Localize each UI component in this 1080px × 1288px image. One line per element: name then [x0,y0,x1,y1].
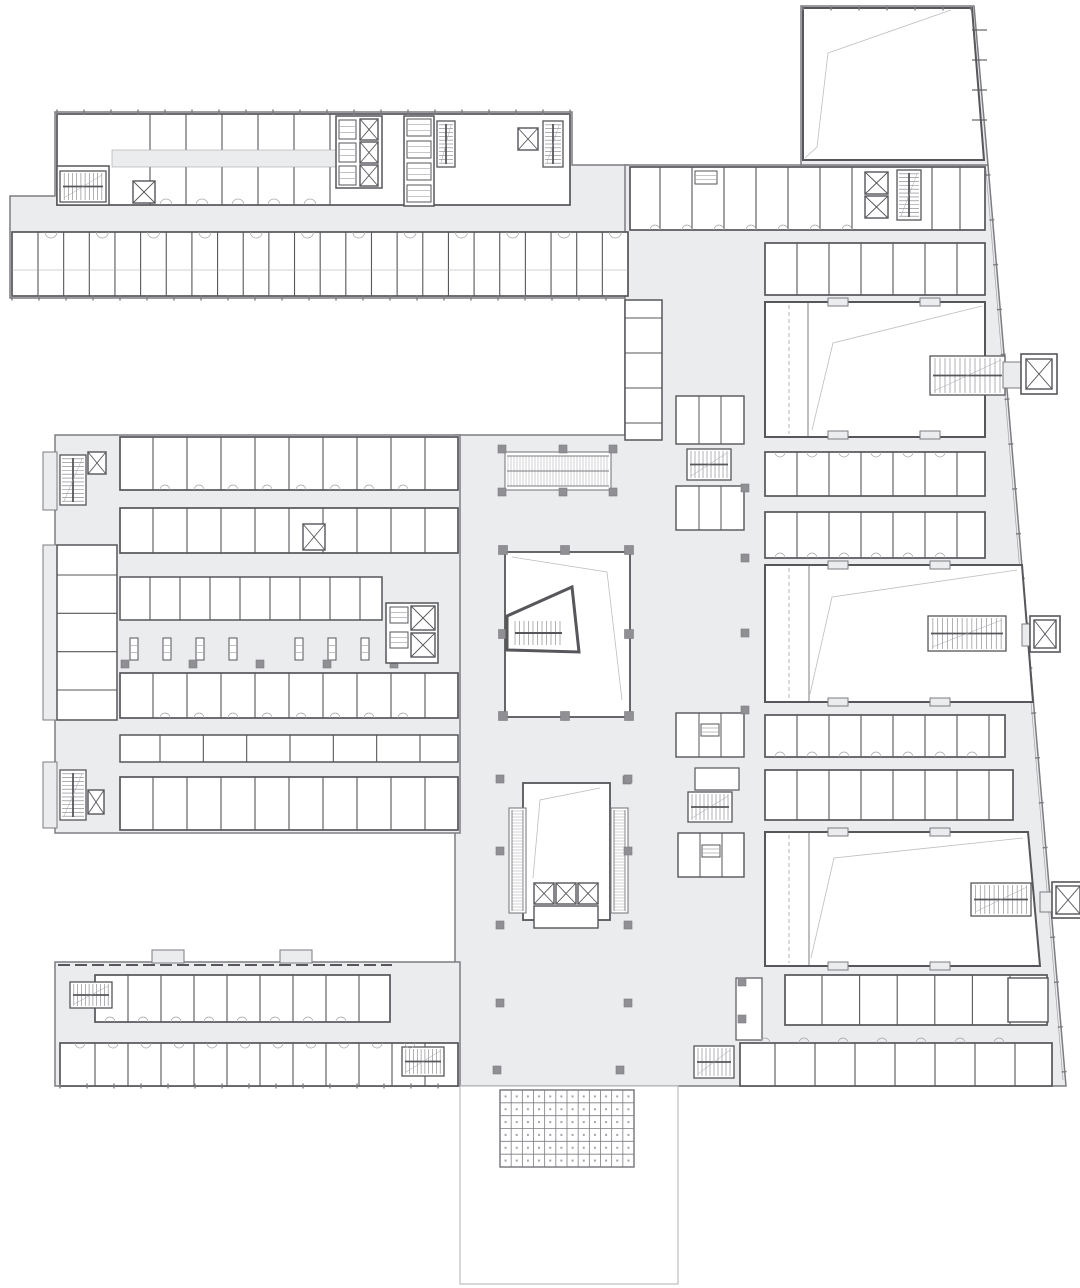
rbt-elev-2 [865,196,888,218]
nw-bed-lift-6 [407,163,431,180]
hall1-notch-4 [920,431,940,439]
hall3-notch-1 [828,828,848,836]
hall3-notch-2 [930,828,950,836]
bandA-west-rooms [676,396,744,444]
ww-rooms-r3 [120,577,382,620]
nw-bed-lift-2 [339,143,356,162]
bandC-pod [1008,978,1048,1022]
atrium2-escalator-right [611,808,628,913]
rbt-elev-1 [865,172,888,194]
hall1-notch-3 [828,431,848,439]
nw-bed-lift-4 [407,119,431,136]
floor-plan-canvas [0,0,1080,1288]
ww-core-elev-2 [411,633,435,657]
bandA-pod [676,486,744,530]
ww-stair-sw [60,770,86,820]
ww-bed-1 [130,638,138,660]
bandA-rooms-2 [765,512,985,558]
ww-bed-7 [361,638,369,660]
atrium2-lobby [534,906,598,928]
nw-stair-west [60,171,106,202]
junction-rooms [736,978,762,1040]
link-rooms [625,300,662,440]
nw-stair-east [543,121,563,167]
nw-bed-lift-1 [339,120,356,139]
sw-stair-e [402,1047,444,1076]
nw-elev-3 [360,165,378,186]
bandA-stair [687,449,731,480]
nw-bed-lift-7 [407,185,431,202]
ww-elev-nw [88,452,106,474]
mid-rooms [695,768,739,790]
bandB-rooms-2 [765,770,1013,820]
ww-elev-mid [303,524,325,550]
ww-bed-2 [163,638,171,660]
nw-elev-1 [360,119,378,140]
rb2-rooms [765,243,985,295]
nw-bed-lift-3 [339,166,356,185]
atrium2-elev-1 [534,883,554,904]
pod2-elev [1034,620,1056,648]
plate-west-stub-b [43,545,57,720]
plate-west-stub-a [43,452,57,510]
atrium2-escalator-left [509,808,526,913]
nw-stair-mid [437,121,455,167]
plate-south-bump-a [152,950,184,963]
sw-stair-w [70,982,112,1008]
atrium2-elev-2 [556,883,576,904]
ww-rooms-r5 [120,735,458,762]
hall1-stair [930,356,1005,395]
mid-stair [688,792,732,822]
hall1-notch-1 [828,298,848,306]
spine-escalators-top [505,452,611,490]
sw-rooms-r2 [60,1043,458,1086]
ww-elev-sw [88,790,104,814]
bandB-rooms-1 [765,715,1005,757]
pod3-elev [1056,886,1080,914]
hall2-notch-1 [828,561,848,569]
ww-core-bed-1 [390,607,408,623]
ww-bed-6 [328,638,336,660]
plate-west-stub-c [43,762,57,828]
hall3-stair [971,883,1031,916]
hall2-notch-2 [930,561,950,569]
nw-elev-2 [360,142,378,163]
hall2-stair [928,616,1006,651]
ww-bed-3 [196,638,204,660]
ww-bed-5 [295,638,303,660]
mid-pod-1-fixture [701,724,719,736]
hall3-notch-4 [930,962,950,970]
ww-west-rooms [57,545,117,720]
nw-elev-b [518,128,538,150]
hall3-notch-3 [828,962,848,970]
nw-elev-a [133,181,155,203]
nw-bed-lift-5 [407,141,431,158]
pod1-bridge [1003,362,1023,388]
hall2-notch-3 [828,698,848,706]
hall2-notch-4 [930,698,950,706]
ww-stair-nw [60,455,86,505]
ww-core-elev-1 [411,606,435,630]
nw-upper-corridor [112,150,337,167]
ww-core-bed-2 [390,632,408,648]
canopy-grid [500,1090,634,1167]
mid-pod-2-fixture [702,845,720,857]
atrium2-elev-3 [578,883,598,904]
hall1-notch-2 [920,298,940,306]
rbt-stair [897,170,921,220]
pod1-elev [1026,359,1052,389]
ww-bed-4 [229,638,237,660]
floor-plan-drawing [0,0,1080,1288]
rbt-duct [695,171,717,184]
junction-stair [694,1046,734,1078]
bandA-rooms-1 [765,452,985,496]
plate-south-bump-b [280,950,312,963]
sw-rooms-r1 [95,975,390,1022]
ne-hall [803,8,984,160]
bandC-rooms-2 [740,1043,1052,1086]
